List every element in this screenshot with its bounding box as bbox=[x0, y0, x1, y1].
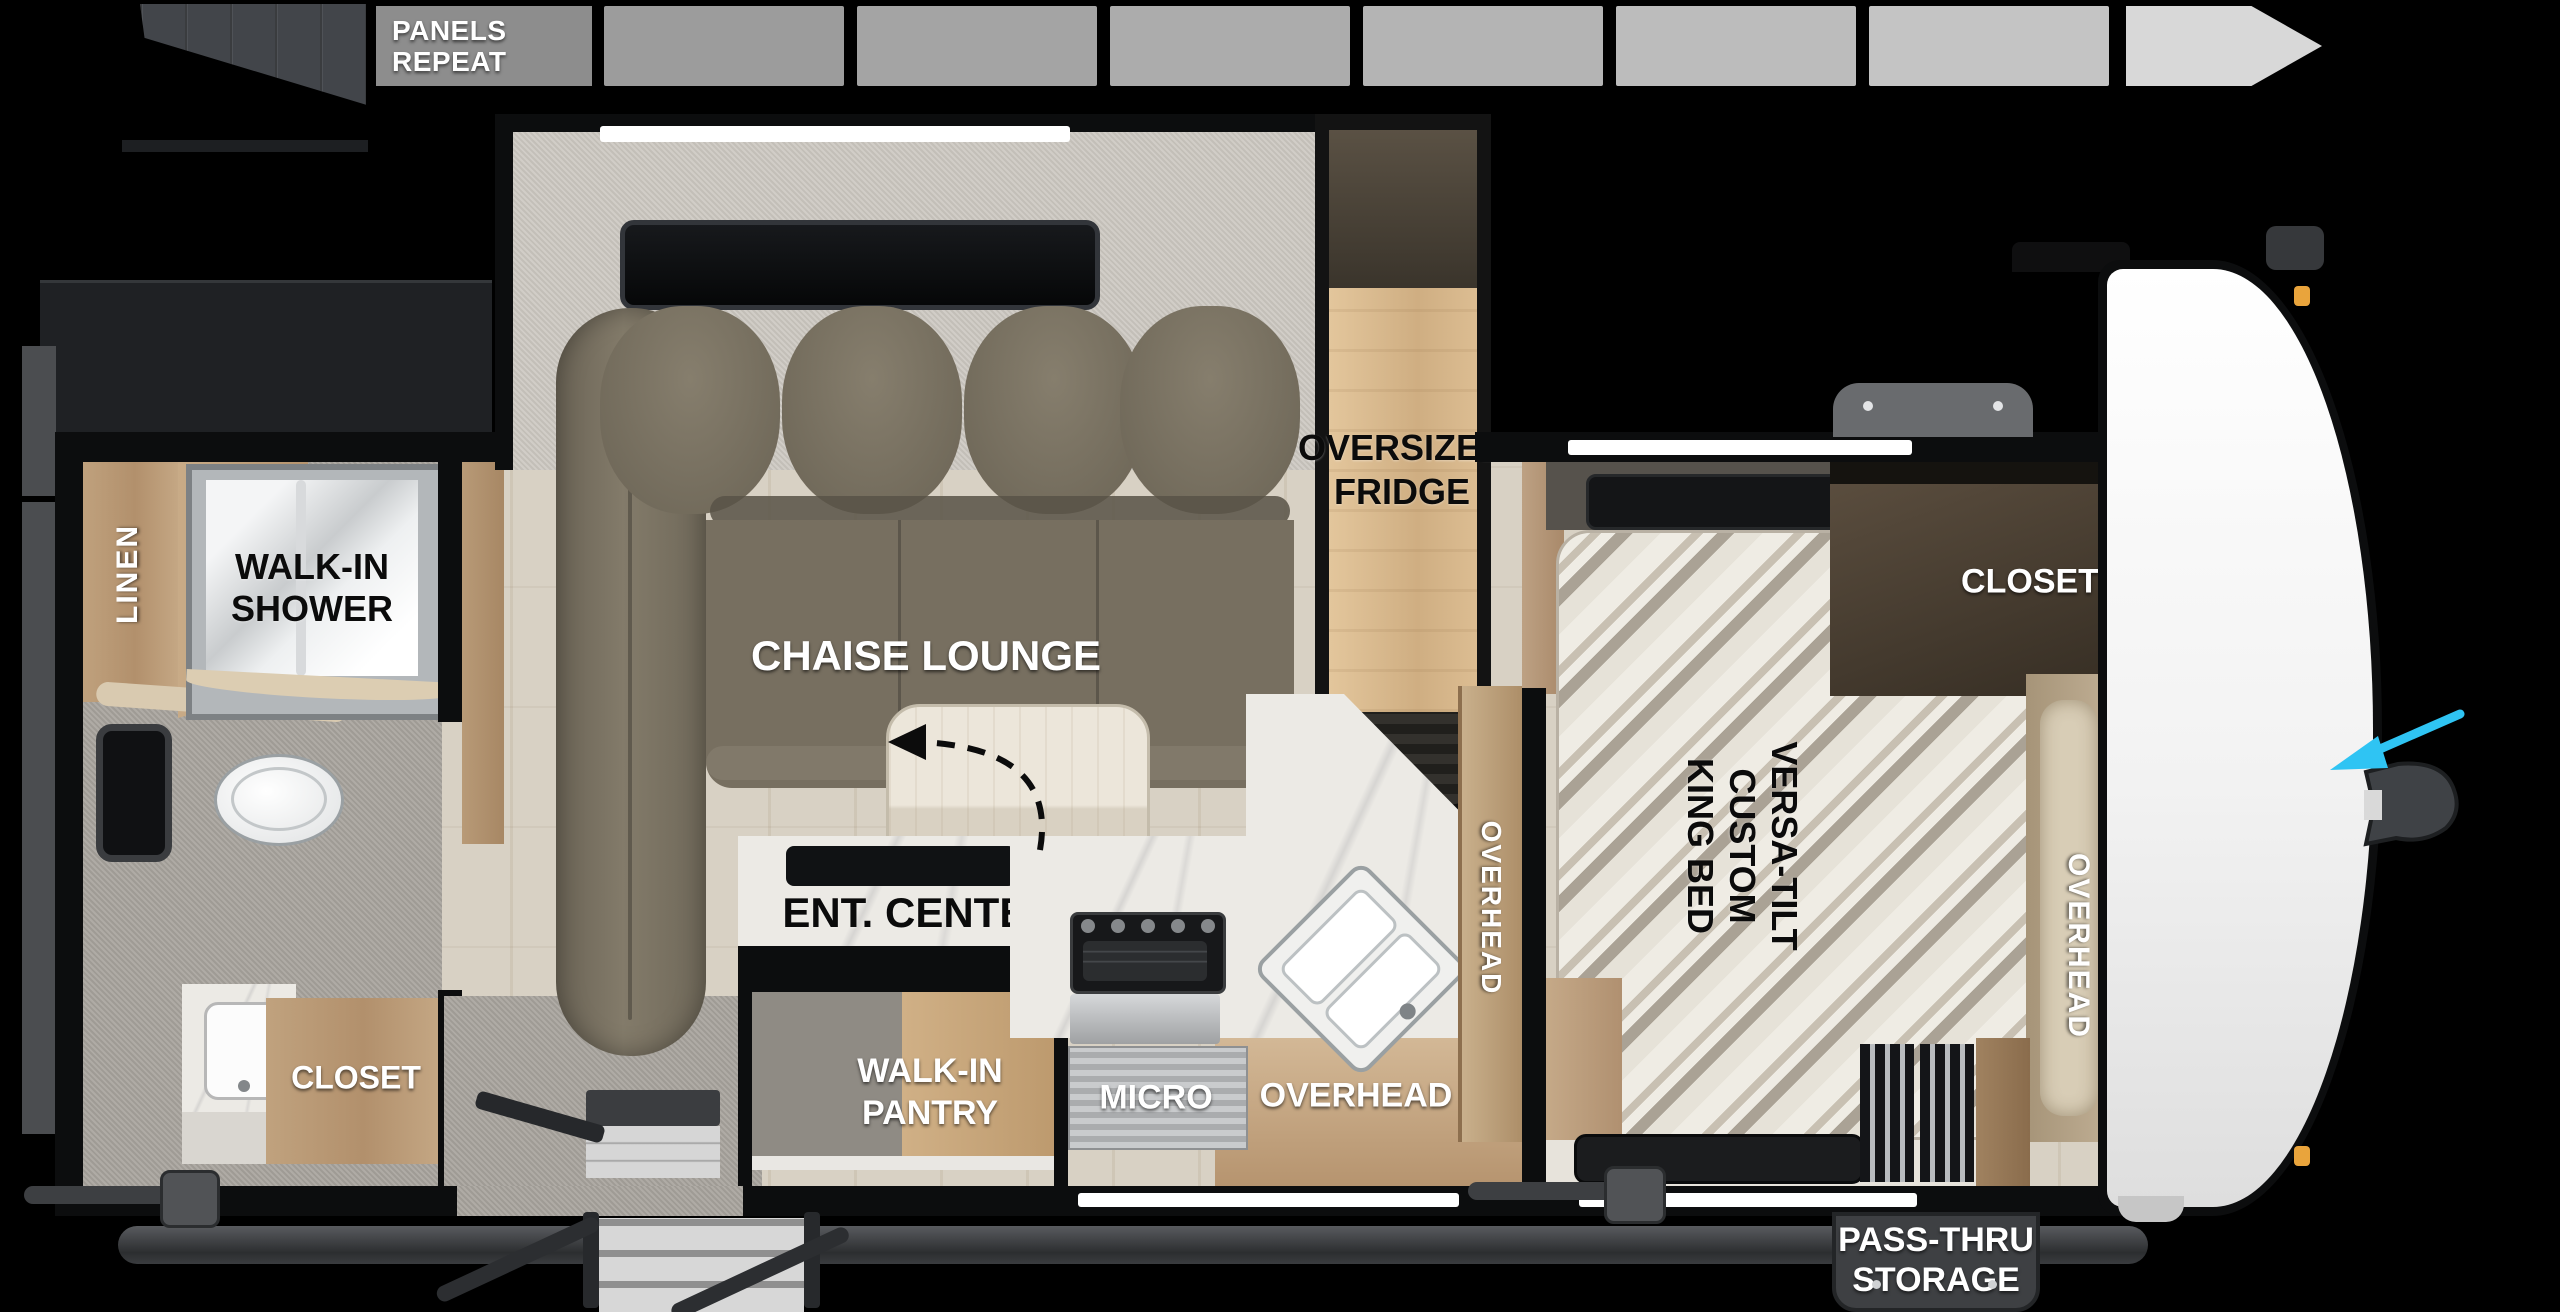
mid-stabilizer-jack bbox=[1468, 1182, 1618, 1200]
stove bbox=[1070, 912, 1226, 994]
front-cap-roof-plate bbox=[1833, 383, 2033, 437]
mid-stabilizer-foot bbox=[1604, 1166, 1666, 1224]
repeat-panel bbox=[604, 6, 844, 86]
direction-arrow-icon bbox=[2320, 690, 2480, 790]
sofa-back-cushion bbox=[782, 306, 962, 514]
bedroom-wall bbox=[1522, 688, 1546, 1186]
cap-bottom-trim bbox=[2118, 1196, 2184, 1222]
wardrobe-slat-door bbox=[1860, 1044, 1914, 1182]
sofa-back-cushion bbox=[600, 306, 780, 514]
route-arrow-icon bbox=[850, 700, 1110, 880]
rear-bumper bbox=[22, 346, 56, 496]
repeat-panel bbox=[1110, 6, 1350, 86]
oven-drawer bbox=[1070, 994, 1220, 1044]
rear-stabilizer-foot bbox=[160, 1170, 220, 1228]
bedroom-window-top bbox=[1568, 440, 1912, 455]
wardrobe-slat-door bbox=[1920, 1044, 1974, 1182]
stove-knob bbox=[1081, 919, 1095, 933]
stove-knob bbox=[1171, 919, 1185, 933]
bedroom-closet-label: CLOSET bbox=[1961, 563, 2099, 602]
entry-step-box-front bbox=[586, 1126, 720, 1178]
wardrobe-side bbox=[1976, 1038, 2030, 1186]
screw bbox=[1863, 401, 1873, 411]
repeat-panel bbox=[1869, 6, 2109, 86]
sofa-back-cushion bbox=[964, 306, 1144, 514]
bathroom-closet-label: CLOSET bbox=[291, 1060, 421, 1097]
top-wall bbox=[55, 432, 510, 462]
overhead-kitchen-label: OVERHEAD bbox=[1260, 1077, 1453, 1116]
overhead-kitchen-tall-label: OVERHEAD bbox=[1475, 821, 1507, 996]
repeat-panel bbox=[857, 6, 1097, 86]
bathroom-window bbox=[96, 724, 172, 862]
rear-bumper bbox=[22, 502, 56, 1134]
micro-label: MICRO bbox=[1099, 1079, 1212, 1118]
slide-out-window bbox=[600, 126, 1070, 142]
linen-label: LINEN bbox=[111, 524, 145, 624]
overhead-bedroom-label: OVERHEAD bbox=[2061, 853, 2095, 1039]
king-bed-label: VERSA-TILT CUSTOM KING BED bbox=[1679, 741, 1805, 950]
toilet bbox=[214, 754, 344, 846]
rear-stabilizer-jack bbox=[24, 1186, 174, 1204]
screw bbox=[1993, 401, 2003, 411]
pass-thru-storage: PASS-THRU STORAGE bbox=[1832, 1212, 2040, 1312]
chaise-lounge-label: CHAISE LOUNGE bbox=[751, 632, 1101, 680]
stove-knob bbox=[1141, 919, 1155, 933]
fridge-top-shelf bbox=[1329, 130, 1477, 290]
repeat-panel bbox=[1616, 6, 1856, 86]
roof-vent-block bbox=[2266, 226, 2324, 270]
screw bbox=[1872, 1280, 1881, 1289]
clearance-light bbox=[2294, 286, 2310, 306]
vanity-faucet bbox=[238, 1080, 250, 1092]
pass-thru-storage-label: PASS-THRU STORAGE bbox=[1838, 1220, 2034, 1300]
entry-step-box bbox=[586, 1090, 720, 1126]
bathroom-door bbox=[462, 452, 504, 844]
stove-knob bbox=[1111, 919, 1125, 933]
sofa-back-cushion bbox=[1120, 306, 1300, 514]
bathroom-wall bbox=[438, 452, 462, 722]
pantry-wall-left bbox=[738, 992, 752, 1188]
oven-window bbox=[1083, 941, 1207, 981]
kitchen-window-bottom bbox=[1078, 1193, 1459, 1207]
toilet-lid bbox=[231, 767, 327, 831]
walk-in-shower-label: WALK-IN SHOWER bbox=[231, 546, 393, 630]
walk-in-pantry-label: WALK-IN PANTRY bbox=[857, 1050, 1002, 1134]
tv bbox=[620, 220, 1100, 310]
repeat-panel bbox=[1363, 6, 1603, 86]
entry-door-opening bbox=[457, 1186, 743, 1216]
awning-shadow bbox=[40, 280, 492, 439]
stove-knob bbox=[1201, 919, 1215, 933]
screw bbox=[1988, 1280, 1997, 1289]
clearance-light bbox=[2294, 1146, 2310, 1166]
siding-panels-icon-shadow bbox=[122, 140, 368, 152]
floorplan-canvas: PANELS REPEAT LINEN WALK-IN SHOWER CLOSE… bbox=[0, 0, 2560, 1312]
rear-wall bbox=[55, 432, 83, 1214]
